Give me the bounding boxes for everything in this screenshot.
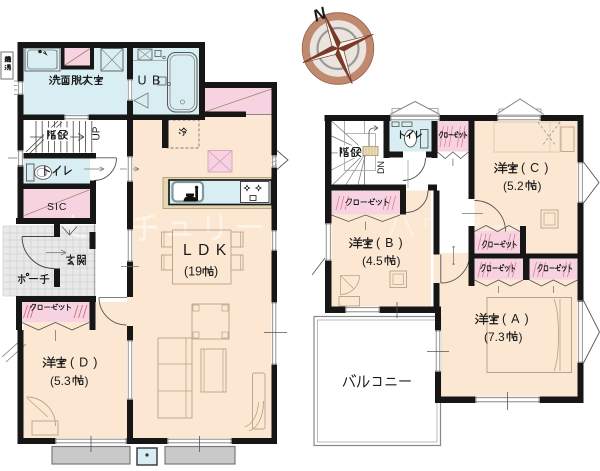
svg-text:(4.5: (4.5 (362, 254, 383, 268)
svg-text:SIC: SIC (47, 201, 68, 213)
svg-text:(7.3: (7.3 (484, 330, 505, 344)
svg-text:): ) (214, 265, 218, 279)
svg-text:(C): (C) (521, 161, 553, 175)
svg-text:): ) (397, 254, 401, 268)
svg-text:(D): (D) (70, 356, 102, 370)
svg-text:UP: UP (92, 126, 103, 140)
svg-text:(5.3: (5.3 (50, 374, 71, 388)
svg-text:(B): (B) (376, 236, 408, 250)
svg-text:U B: U B (138, 74, 162, 88)
svg-text:DN: DN (376, 161, 386, 174)
svg-text:LDK: LDK (183, 242, 233, 259)
svg-text:): ) (538, 179, 542, 193)
svg-text:(5.2: (5.2 (503, 179, 524, 193)
svg-text:(A): (A) (502, 312, 534, 326)
svg-text:21: 21 (287, 216, 329, 246)
svg-text:): ) (519, 330, 523, 344)
svg-text:(19: (19 (184, 265, 202, 279)
svg-text:): ) (85, 374, 89, 388)
